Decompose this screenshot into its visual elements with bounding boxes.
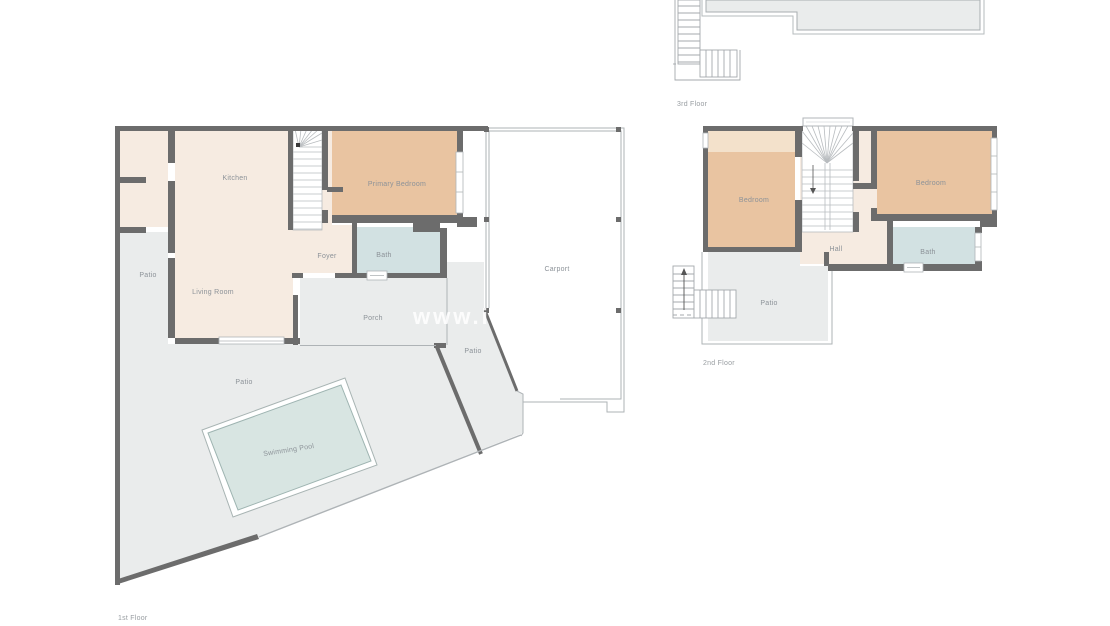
staircase-2f — [802, 126, 853, 232]
hall-label: Hall — [829, 246, 842, 253]
bedroom-right-window — [991, 138, 997, 210]
floor2-plan: Bedroom Bedroom Hall Bath Patio 2nd Floo… — [673, 118, 997, 367]
floor3-caption: 3rd Floor — [677, 101, 708, 108]
roof-terrace — [706, 0, 980, 30]
bath-2f-label: Bath — [920, 249, 935, 256]
floor1-caption: 1st Floor — [118, 615, 148, 622]
stair-direction-marker — [296, 143, 300, 147]
bedroom-window — [456, 152, 463, 213]
kitchen-label: Kitchen — [222, 175, 247, 182]
bedroom-left-closet-strip — [708, 131, 795, 152]
bath-1f-label: Bath — [376, 252, 391, 259]
floor2-caption: 2nd Floor — [703, 360, 735, 367]
bath-2f-window — [975, 233, 981, 261]
bedroom-right-label: Bedroom — [916, 180, 946, 187]
floor1-plan: Kitchen Living Room Foyer Bath Primary B… — [115, 126, 624, 622]
patio-left-label: Patio — [139, 272, 156, 279]
floorplan-page: Kitchen Living Room Foyer Bath Primary B… — [0, 0, 1110, 626]
floorplan-canvas: Kitchen Living Room Foyer Bath Primary B… — [0, 0, 1110, 626]
patio-side-label: Patio — [464, 348, 481, 355]
room-kitchen-living — [175, 131, 293, 338]
room-bath-2f — [893, 227, 975, 264]
porch-door-threshold — [367, 271, 387, 280]
room-primary-bedroom — [332, 131, 457, 217]
stair-top-ledge — [803, 118, 853, 126]
room-bedroom-right — [877, 131, 992, 214]
bath-2f-door-threshold — [904, 263, 923, 272]
carport-posts — [484, 127, 621, 313]
carport-label: Carport — [544, 266, 569, 273]
bedroom-left-window — [703, 133, 708, 148]
patio-main-label: Patio — [235, 379, 252, 386]
floor3-plan: 3rd Floor — [673, 0, 984, 108]
foyer-label: Foyer — [317, 253, 337, 260]
porch-label: Porch — [363, 315, 383, 322]
patio-2f-label: Patio — [760, 300, 777, 307]
bedroom-left-label: Bedroom — [739, 197, 769, 204]
room-bath-1f — [357, 227, 440, 273]
sliding-door — [219, 337, 284, 344]
living-room-label: Living Room — [192, 289, 234, 296]
primary-bedroom-label: Primary Bedroom — [368, 181, 426, 188]
watermark: www.i — [412, 304, 491, 329]
staircase-1f — [293, 128, 322, 230]
